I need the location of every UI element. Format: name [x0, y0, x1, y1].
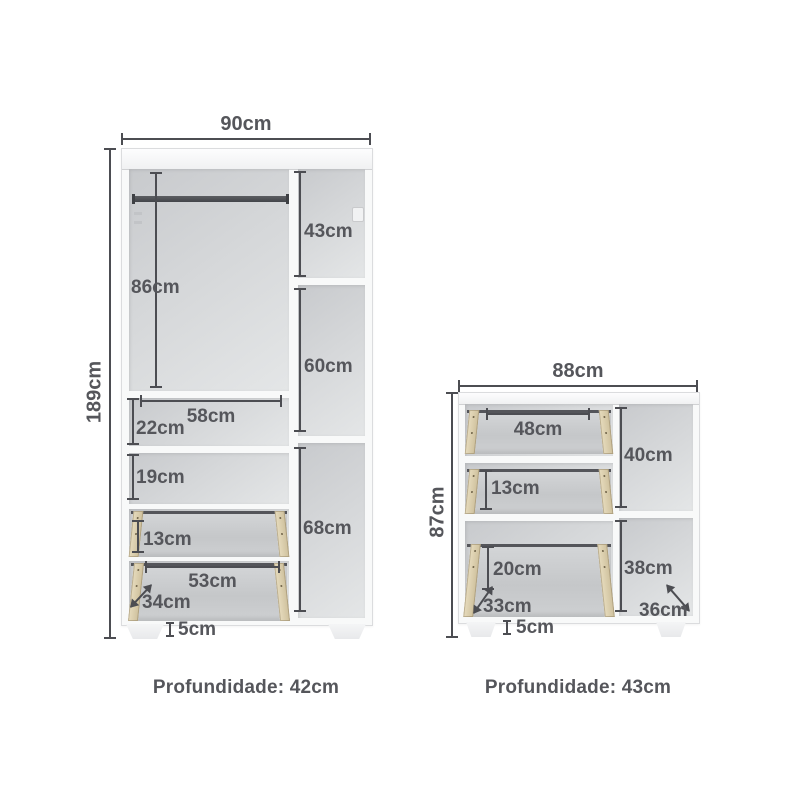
wardrobe-feet-dimension-line — [169, 622, 171, 637]
furniture-dimensions-diagram: 90cm 189cm — [0, 0, 800, 800]
dresser-middle-drawer-dimension-line — [485, 470, 487, 510]
dresser-middle-drawer-left-rail — [465, 469, 480, 514]
wardrobe-side-top-label: 43cm — [304, 221, 353, 243]
wardrobe-right-foot — [328, 624, 366, 639]
wardrobe-hanging-label: 86cm — [131, 277, 180, 299]
wardrobe-large-drawer-depth-label: 34cm — [142, 592, 191, 614]
wardrobe-middle-section-dimension-line — [132, 454, 134, 500]
wardrobe-height-label: 189cm — [84, 361, 107, 423]
dresser-base-depth-label: 36cm — [639, 600, 688, 622]
wardrobe-upper-section-dimension-line — [132, 398, 134, 445]
dresser-feet-dimension-line — [506, 620, 508, 635]
dresser-top-drawer-left-rail — [465, 410, 480, 454]
wardrobe-width-dimension-line — [121, 138, 371, 140]
wardrobe-side-bottom-dimension-line — [299, 447, 301, 612]
wardrobe-rod-bracket — [134, 212, 142, 215]
wardrobe-small-drawer-dimension-line — [137, 520, 139, 553]
wardrobe-upper-section-label: 22cm — [136, 418, 185, 440]
dresser-top-drawer-width-label: 48cm — [486, 419, 590, 441]
wardrobe-shelf-width-dimension-line — [140, 400, 282, 402]
wardrobe-left-foot — [126, 624, 164, 639]
dresser-side-top-dimension-line — [620, 407, 622, 508]
wardrobe-side-top-dimension-line — [299, 171, 301, 277]
dresser-depth-label: Profundidade: 43cm — [458, 677, 698, 699]
wardrobe-height-dimension-line — [109, 148, 111, 639]
wardrobe-side-middle-label: 60cm — [304, 356, 353, 378]
wardrobe-feet-label: 5cm — [178, 619, 216, 641]
dresser-width-label: 88cm — [458, 360, 698, 383]
dresser-side-bottom-dimension-line — [620, 520, 622, 612]
dresser-left-foot — [466, 622, 496, 637]
wardrobe-width-label: 90cm — [121, 113, 371, 136]
dresser-height-dimension-line — [451, 392, 453, 638]
wardrobe-top-panel — [122, 149, 372, 170]
dresser-bottom-drawer-depth-label: 33cm — [483, 596, 532, 618]
wardrobe-large-drawer-width-label: 53cm — [145, 571, 280, 593]
dresser-bottom-drawer-label: 20cm — [493, 559, 542, 581]
dresser-top-drawer-width-dimension-line — [486, 413, 590, 415]
dresser-right-foot — [656, 622, 686, 637]
dresser-middle-drawer-label: 13cm — [491, 478, 540, 500]
dresser-side-bottom-label: 38cm — [624, 558, 673, 580]
dresser-feet-label: 5cm — [516, 617, 554, 639]
wardrobe-small-drawer-label: 13cm — [143, 529, 192, 551]
wardrobe-middle-section-label: 19cm — [136, 467, 185, 489]
dresser-width-dimension-line — [458, 385, 698, 387]
dresser-side-top-label: 40cm — [624, 445, 673, 467]
wardrobe-hinge-plate — [352, 207, 364, 222]
dresser-height-label: 87cm — [427, 486, 450, 537]
wardrobe-side-bottom-label: 68cm — [303, 518, 352, 540]
wardrobe-depth-label: Profundidade: 42cm — [121, 677, 371, 699]
wardrobe-side-middle-dimension-line — [299, 288, 301, 432]
wardrobe-large-drawer-width-dimension-line — [145, 566, 280, 568]
